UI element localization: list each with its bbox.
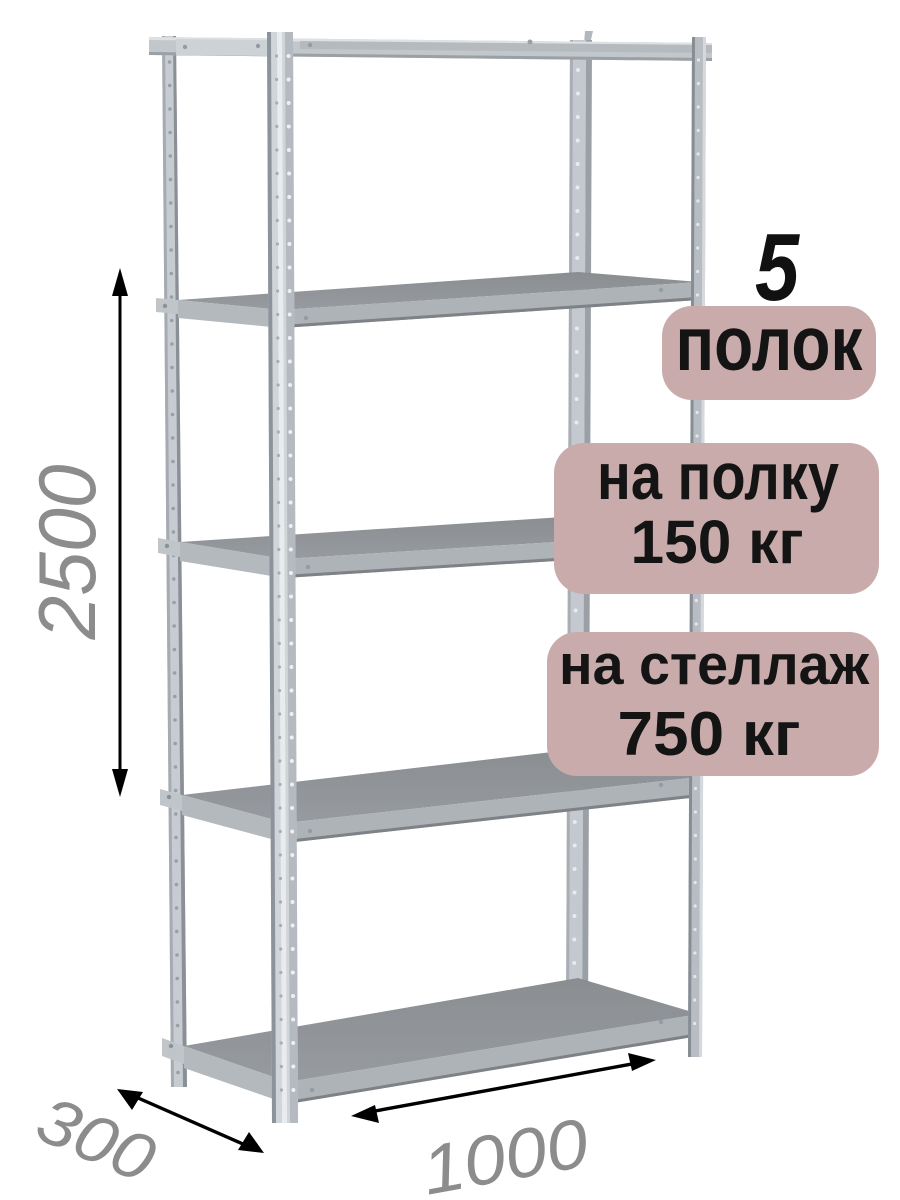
svg-text:на полку: на полку: [597, 439, 839, 513]
svg-text:750 кг: 750 кг: [618, 700, 801, 769]
svg-text:2500: 2500: [23, 465, 113, 641]
svg-text:на стеллаж: на стеллаж: [559, 633, 870, 697]
svg-text:полок: полок: [676, 301, 863, 387]
svg-text:150 кг: 150 кг: [631, 508, 804, 576]
